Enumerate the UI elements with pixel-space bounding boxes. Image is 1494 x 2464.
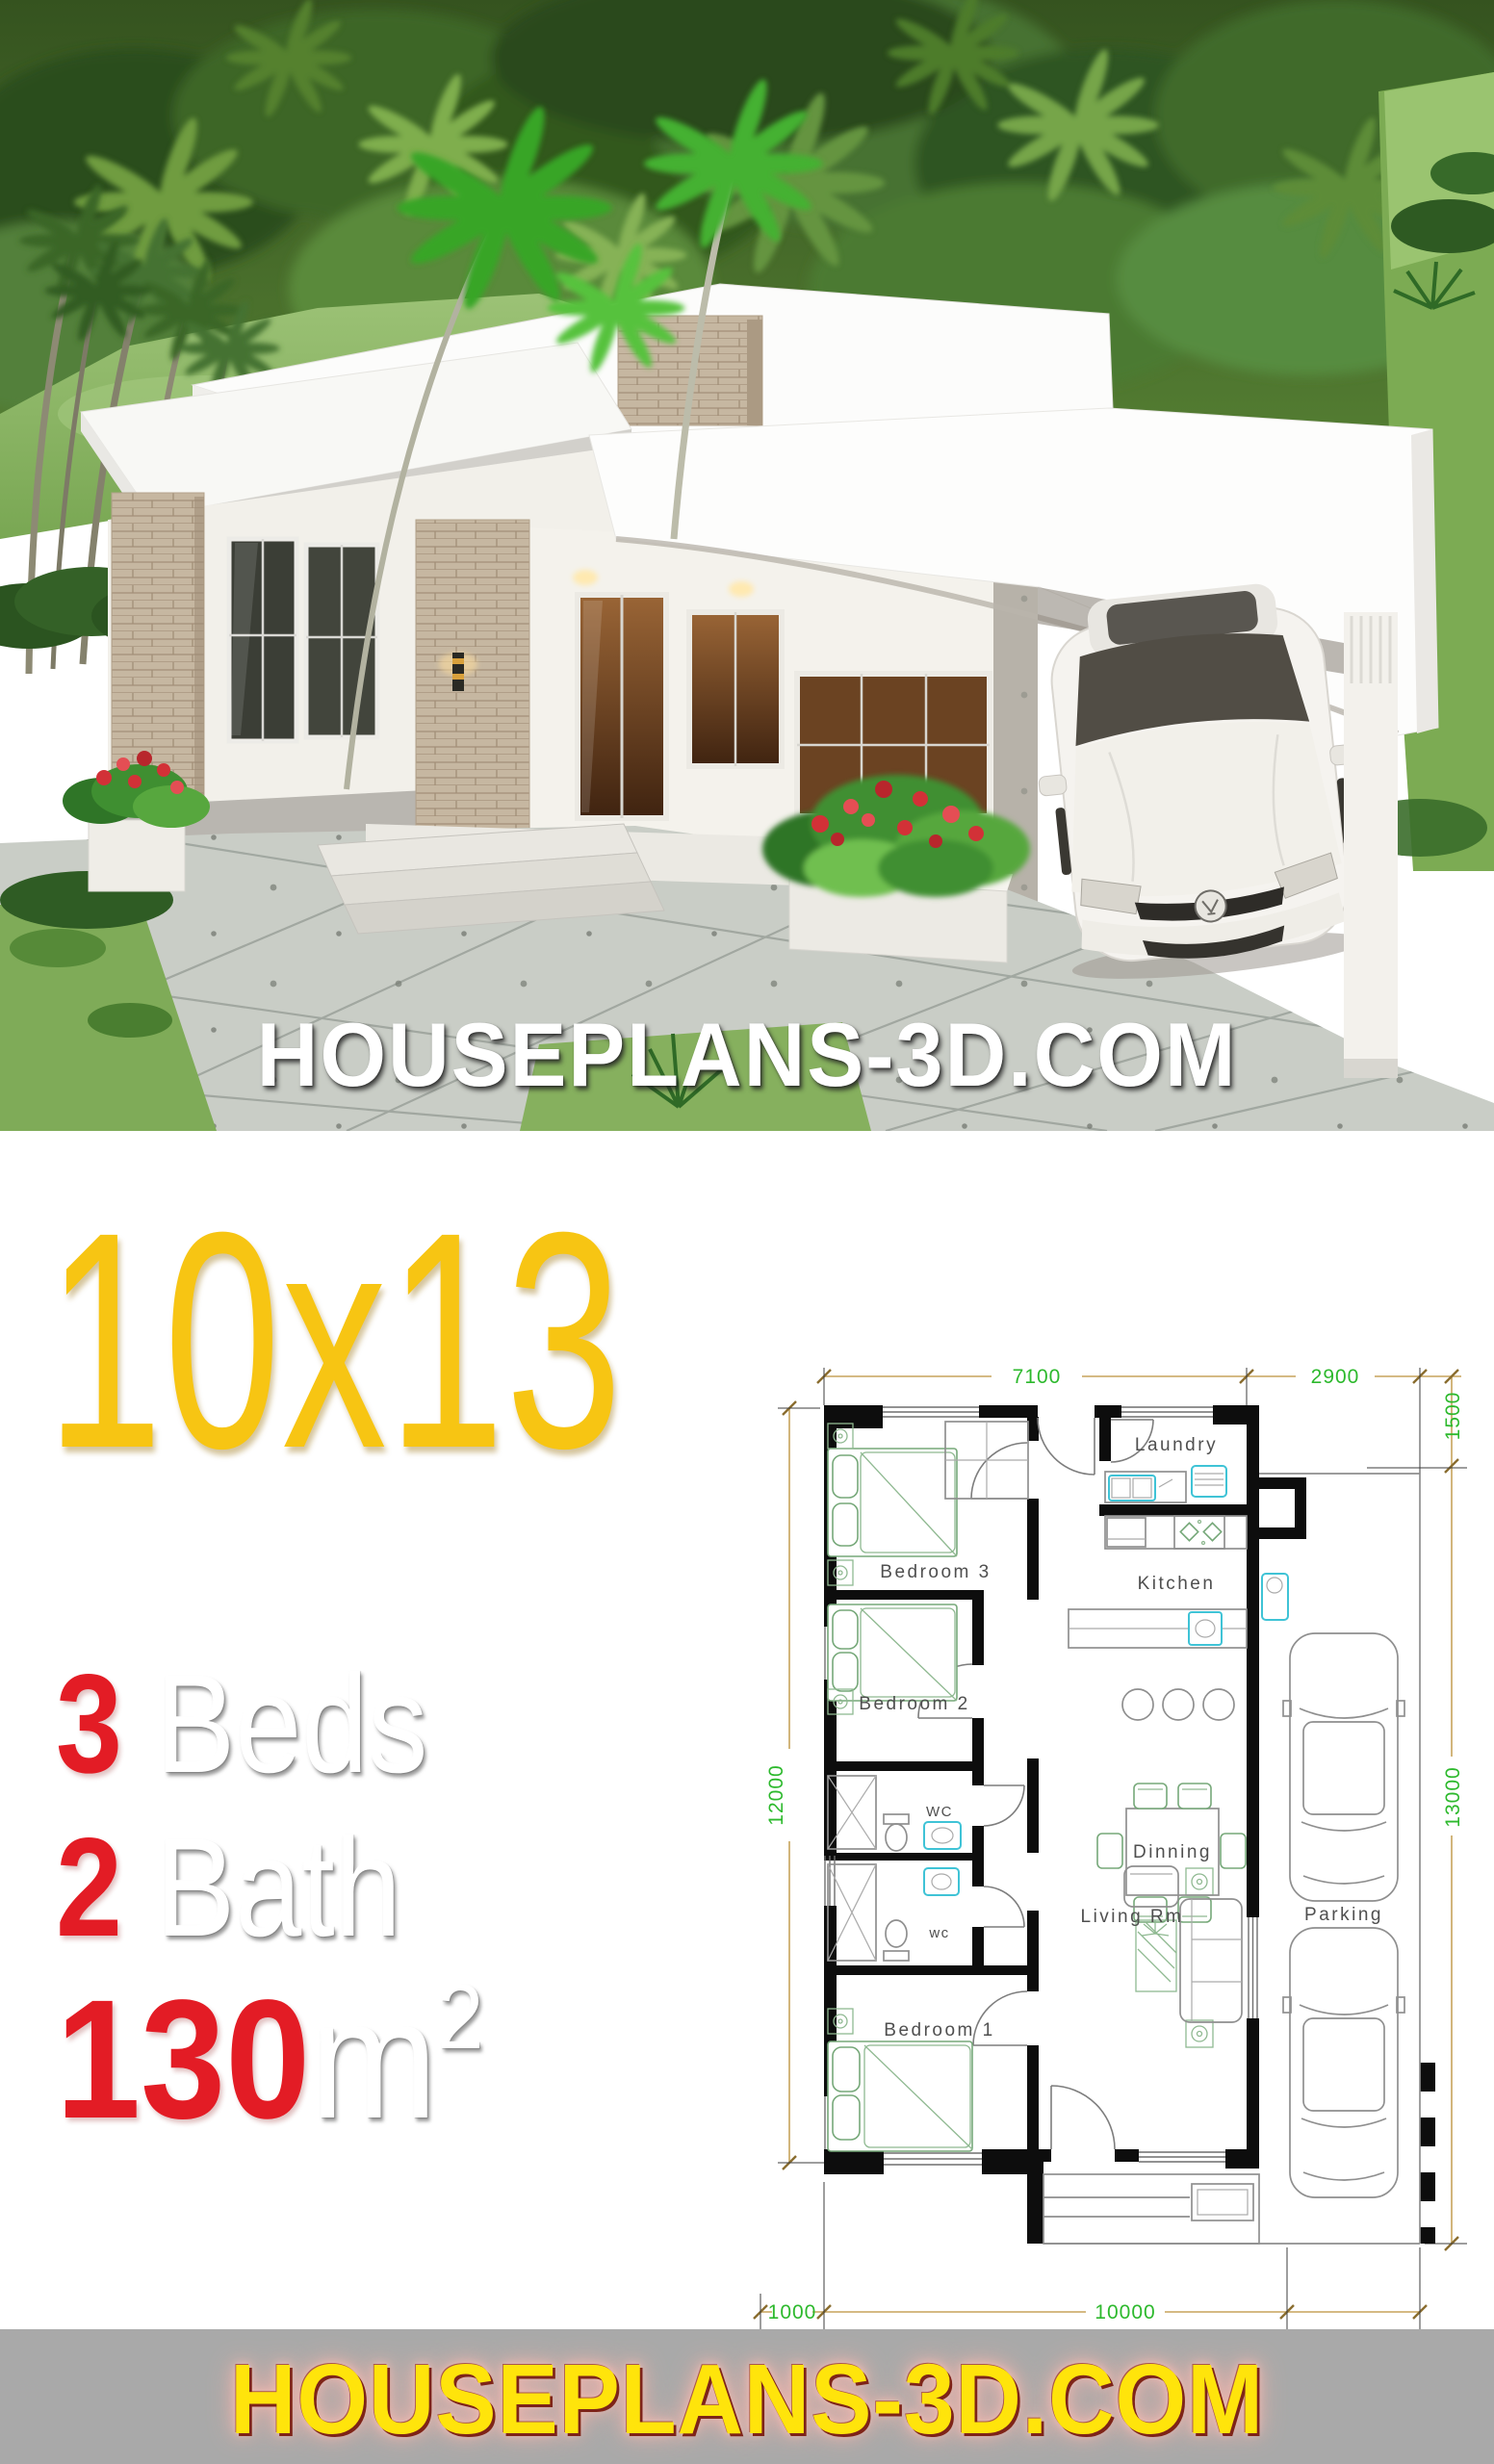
laundry-fixtures — [1105, 1466, 1226, 1502]
beds — [828, 1422, 1028, 2151]
dim-bottom-main: 10000 — [1095, 2301, 1155, 2323]
dim-bottom-offset: 1000 — [768, 2301, 817, 2323]
footer-banner: HOUSEPLANS-3D.COM — [0, 2329, 1494, 2464]
living-furniture — [1124, 1866, 1242, 2022]
label-living: Living Rm — [1081, 1907, 1184, 1927]
dim-offset-right: 1500 — [1442, 1392, 1464, 1441]
label-wc-lower: wc — [928, 1925, 949, 1941]
spec-area: 130m2 — [56, 1975, 483, 2144]
spec-beds: 3 Beds — [56, 1654, 427, 1794]
label-laundry: Laundry — [1135, 1435, 1218, 1455]
hero-watermark: HOUSEPLANS-3D.COM — [45, 1003, 1450, 1107]
bath-count: 2 — [56, 1809, 122, 1965]
window-entry — [689, 612, 782, 766]
beds-label: Beds — [156, 1645, 428, 1802]
label-dinning: Dinning — [1133, 1842, 1212, 1862]
label-wc-upper: WC — [926, 1804, 953, 1820]
entry-door — [578, 595, 666, 818]
plot-size-title: 10x13 — [46, 1186, 624, 1494]
footer-site-name: HOUSEPLANS-3D.COM — [60, 2343, 1434, 2456]
label-bedroom3: Bedroom 3 — [880, 1562, 991, 1582]
beds-count: 3 — [56, 1645, 122, 1802]
floor-plan: 7100 2900 1500 13000 12000 1000 10000 — [751, 1333, 1494, 2334]
car-top — [1283, 1633, 1404, 1901]
label-kitchen: Kitchen — [1138, 1574, 1216, 1594]
car-bottom — [1283, 1928, 1404, 2197]
label-bedroom1: Bedroom 1 — [884, 2020, 994, 2040]
dim-left: 12000 — [765, 1764, 787, 1825]
dim-top-carport: 2900 — [1311, 1366, 1360, 1388]
label-bedroom2: Bedroom 2 — [859, 1694, 969, 1714]
bed-3 — [828, 1449, 957, 1556]
bed-1 — [828, 2041, 972, 2151]
bath-label: Bath — [156, 1809, 401, 1965]
house-3d-render — [0, 0, 1494, 1131]
area-value: 130 — [56, 1965, 310, 2154]
spec-bath: 2 Bath — [56, 1817, 401, 1958]
poster-page: HOUSEPLANS-3D.COM 10x13 3 Beds 2 Bath 13… — [0, 0, 1494, 2464]
label-parking: Parking — [1304, 1905, 1383, 1925]
area-unit: m — [310, 1965, 437, 2154]
dim-top-main: 7100 — [1013, 1366, 1062, 1388]
area-superscript: 2 — [437, 1965, 483, 2068]
dim-right: 13000 — [1442, 1766, 1464, 1827]
bed-2 — [828, 1604, 957, 1701]
